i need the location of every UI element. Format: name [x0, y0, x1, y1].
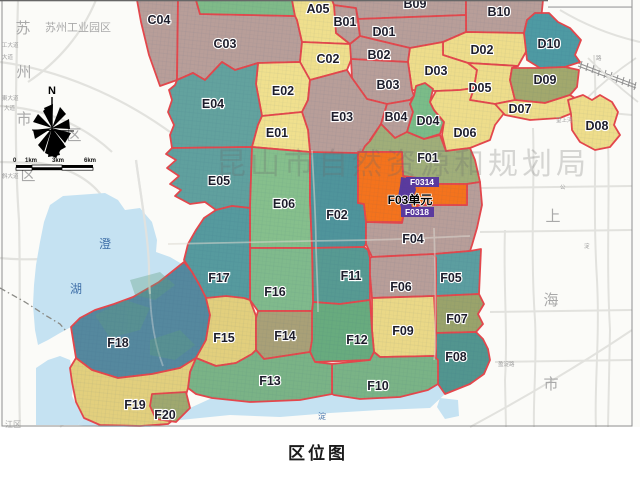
svg-text:東大道: 東大道 [2, 94, 19, 102]
svg-text:淀: 淀 [584, 242, 590, 250]
svg-text:F11: F11 [341, 269, 362, 283]
svg-text:C03: C03 [214, 37, 237, 51]
svg-text:F20: F20 [154, 408, 176, 422]
svg-text:F16: F16 [264, 285, 286, 299]
svg-text:F13: F13 [259, 374, 281, 388]
svg-text:E03: E03 [331, 110, 353, 124]
svg-text:F14: F14 [274, 329, 296, 343]
svg-text:F08: F08 [445, 350, 467, 364]
svg-text:B10: B10 [488, 5, 511, 19]
svg-text:湖: 湖 [70, 281, 82, 296]
svg-text:工大道: 工大道 [2, 41, 19, 49]
svg-text:F15: F15 [213, 331, 235, 345]
svg-text:F02: F02 [326, 208, 348, 222]
svg-text:F07: F07 [446, 312, 468, 326]
svg-text:盈淀路: 盈淀路 [498, 360, 515, 368]
svg-text:F06: F06 [390, 280, 412, 294]
svg-text:F18: F18 [107, 336, 129, 350]
svg-text:昆山市自然资源和规划局: 昆山市自然资源和规划局 [216, 148, 590, 181]
svg-text:B03: B03 [377, 78, 400, 92]
svg-text:州: 州 [16, 64, 31, 81]
svg-text:B09: B09 [404, 0, 427, 11]
svg-text:淀: 淀 [318, 411, 326, 421]
svg-text:望上河: 望上河 [556, 116, 573, 124]
svg-text:D07: D07 [509, 102, 532, 116]
svg-text:澄: 澄 [99, 236, 111, 251]
svg-text:F10: F10 [367, 379, 389, 393]
svg-text:1km: 1km [25, 158, 37, 164]
svg-text:苏州工业园区: 苏州工业园区 [45, 21, 111, 34]
svg-text:C04: C04 [148, 13, 171, 27]
svg-text:N: N [48, 85, 56, 97]
svg-text:斜大道: 斜大道 [2, 172, 19, 180]
svg-text:F01: F01 [417, 151, 439, 165]
svg-text:E02: E02 [272, 84, 294, 98]
svg-text:市: 市 [543, 376, 558, 393]
svg-text:海: 海 [543, 292, 558, 309]
svg-text:6km: 6km [84, 158, 96, 164]
svg-text:F19: F19 [124, 398, 146, 412]
svg-text:D03: D03 [425, 64, 448, 78]
svg-text:A05: A05 [307, 2, 330, 16]
svg-text:E05: E05 [208, 174, 230, 188]
svg-text:D09: D09 [534, 73, 557, 87]
svg-text:F09: F09 [392, 324, 414, 338]
svg-text:E06: E06 [273, 197, 295, 211]
svg-text:B02: B02 [368, 48, 391, 62]
svg-text:E04: E04 [202, 97, 224, 111]
svg-text:F03单元: F03单元 [388, 192, 433, 207]
svg-text:D06: D06 [454, 126, 477, 140]
svg-text:D01: D01 [373, 25, 396, 39]
svg-text:B04: B04 [385, 110, 408, 124]
svg-text:D08: D08 [586, 119, 609, 133]
svg-text:F12: F12 [346, 333, 368, 347]
svg-text:大道: 大道 [4, 104, 16, 112]
svg-text:上: 上 [545, 208, 560, 225]
svg-text:苏: 苏 [15, 20, 30, 37]
svg-text:D02: D02 [471, 43, 494, 57]
svg-text:大道: 大道 [2, 53, 14, 61]
svg-text:江区: 江区 [5, 420, 21, 429]
svg-text:F05: F05 [440, 271, 462, 285]
svg-text:B01: B01 [334, 15, 357, 29]
svg-text:F17: F17 [208, 271, 230, 285]
svg-text:D04: D04 [417, 114, 440, 128]
svg-text:市: 市 [16, 111, 31, 128]
svg-text:路: 路 [596, 54, 602, 62]
svg-text:C02: C02 [317, 52, 340, 66]
svg-text:D10: D10 [538, 37, 561, 51]
svg-text:区位图: 区位图 [288, 443, 348, 463]
svg-text:F0318: F0318 [405, 207, 429, 217]
svg-text:D05: D05 [469, 81, 492, 95]
svg-text:F04: F04 [402, 232, 424, 246]
svg-text:公: 公 [560, 185, 566, 191]
svg-text:E01: E01 [266, 126, 288, 140]
svg-text:3km: 3km [52, 158, 64, 164]
